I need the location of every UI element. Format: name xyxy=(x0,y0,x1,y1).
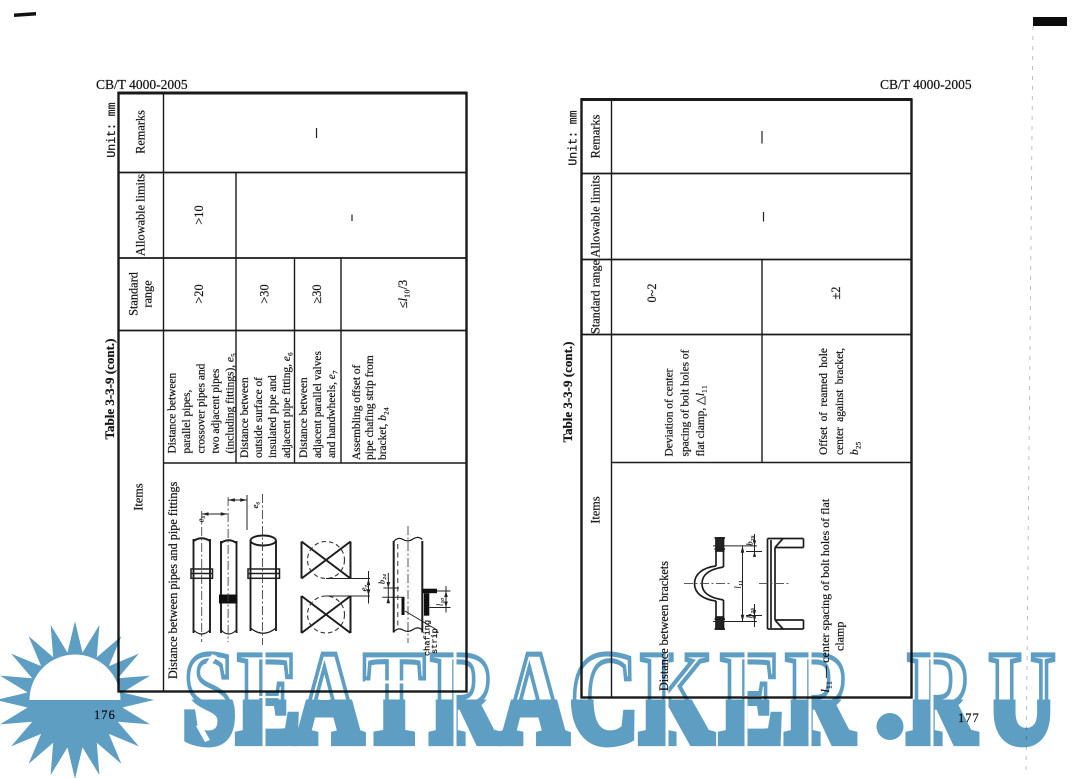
svg-text:Table 3-3-9 (cont.): Table 3-3-9 (cont.) xyxy=(102,339,117,440)
svg-text:e₆: e₆ xyxy=(250,502,260,509)
svg-text:b₂₅: b₂₅ xyxy=(745,535,755,545)
svg-text:flat clamp, △l₁₁: flat clamp, △l₁₁ xyxy=(695,385,707,456)
svg-text:range: range xyxy=(141,280,155,308)
svg-text:Allowable limits: Allowable limits xyxy=(134,174,148,257)
svg-text:insulated pipe and: insulated pipe and xyxy=(267,375,279,458)
svg-text:>30: >30 xyxy=(258,284,272,303)
svg-text:>10: >10 xyxy=(192,205,206,224)
svg-text:>20: >20 xyxy=(192,284,206,303)
svg-text:±2: ±2 xyxy=(829,287,843,300)
svg-text:Deviation of center: Deviation of center xyxy=(664,368,676,456)
svg-text:Standard: Standard xyxy=(127,272,141,316)
svg-text:e₇: e₇ xyxy=(359,585,369,592)
svg-text:Remarks: Remarks xyxy=(589,114,603,158)
svg-text:Standard range: Standard range xyxy=(589,259,603,334)
svg-text:Distance between: Distance between xyxy=(167,373,179,454)
svg-text:Table 3-3-9 (cont.): Table 3-3-9 (cont.) xyxy=(560,342,575,443)
svg-text:Distance between: Distance between xyxy=(298,377,310,458)
svg-text:(including fittings), e₅: (including fittings), e₅ xyxy=(225,353,237,454)
svg-text:adjacent pipe fitting, e₆: adjacent pipe fitting, e₆ xyxy=(281,352,293,458)
svg-text:≥30: ≥30 xyxy=(310,284,324,303)
svg-text:bracket, b₂₄: bracket, b₂₄ xyxy=(377,407,389,460)
svg-text:Distance between pipes and pip: Distance between pipes and pipe fittings xyxy=(166,481,180,679)
svg-text:l₁₁: l₁₁ xyxy=(733,580,743,588)
svg-text:Items: Items xyxy=(132,483,146,511)
svg-text:crossover pipes and: crossover pipes and xyxy=(196,363,208,453)
svg-text:Remarks: Remarks xyxy=(134,110,148,154)
svg-text:pipe chafing strip from: pipe chafing strip from xyxy=(364,355,376,460)
svg-text:and handwheels, e₇: and handwheels, e₇ xyxy=(326,370,338,458)
svg-text:≤l₁₀/3: ≤l₁₀/3 xyxy=(396,280,410,308)
svg-text:center against bracket,: center against bracket, xyxy=(834,348,846,455)
svg-text:0~2: 0~2 xyxy=(645,284,659,303)
svg-text:l₁₀: l₁₀ xyxy=(435,598,445,606)
svg-text:CB/T 4000-2005: CB/T 4000-2005 xyxy=(880,77,972,92)
svg-text:Items: Items xyxy=(589,496,603,524)
svg-text:parallel pipes,: parallel pipes, xyxy=(181,389,193,453)
svg-text:b₂₄: b₂₄ xyxy=(377,574,387,584)
svg-text:CB/T 4000-2005: CB/T 4000-2005 xyxy=(96,77,188,92)
svg-text:e₅: e₅ xyxy=(196,516,206,523)
svg-text:outside surface of: outside surface of xyxy=(253,377,265,458)
svg-text:Unit: mm: Unit: mm xyxy=(568,110,581,165)
svg-text:Allowable limits: Allowable limits xyxy=(589,175,603,258)
svg-text:Offset of reamed hole: Offset of reamed hole xyxy=(818,348,830,455)
svg-text:spacing of bolt holes of: spacing of bolt holes of xyxy=(679,349,691,456)
svg-text:Unit: mm: Unit: mm xyxy=(106,102,119,157)
svg-text:b₂₅: b₂₅ xyxy=(745,608,755,618)
svg-text:Distance between: Distance between xyxy=(239,377,251,458)
svg-text:adjacent parallel valves: adjacent parallel valves xyxy=(312,351,324,458)
svg-text:Assembling offset of: Assembling offset of xyxy=(351,364,363,460)
svg-text:b₂₅: b₂₅ xyxy=(849,441,861,455)
svg-text:two adjacent pipes: two adjacent pipes xyxy=(210,368,222,453)
